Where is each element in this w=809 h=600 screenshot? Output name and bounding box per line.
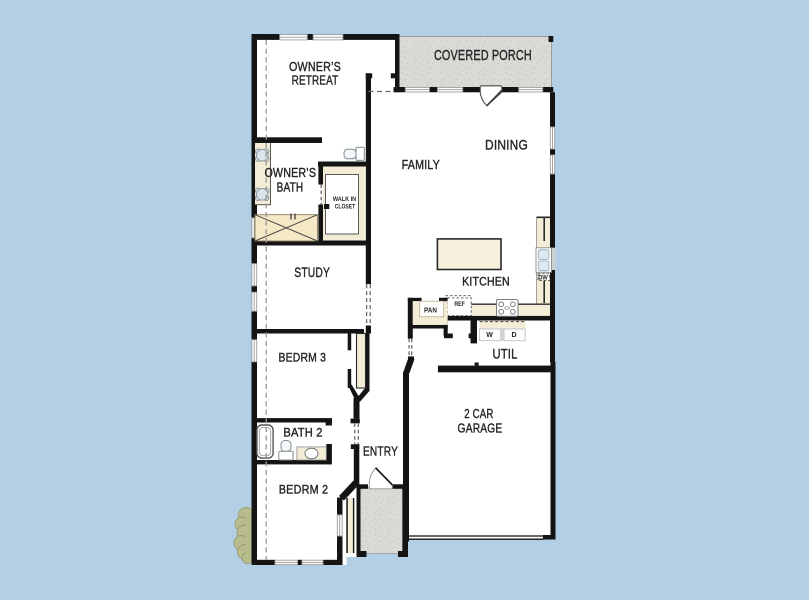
svg-text:W: W <box>486 332 493 339</box>
svg-text:PAN: PAN <box>424 306 437 315</box>
svg-text:2 CAR: 2 CAR <box>464 407 493 421</box>
svg-text:D: D <box>511 332 516 339</box>
svg-text:KITCHEN: KITCHEN <box>462 275 510 289</box>
svg-text:DINING: DINING <box>485 136 528 152</box>
svg-text:BEDRM 2: BEDRM 2 <box>279 483 329 497</box>
svg-text:REF: REF <box>454 301 465 308</box>
svg-text:ENTRY: ENTRY <box>363 444 398 458</box>
svg-text:CLOSET: CLOSET <box>335 204 356 211</box>
svg-text:OWNER’S: OWNER’S <box>264 165 316 180</box>
svg-text:FAMILY: FAMILY <box>402 157 440 172</box>
svg-text:WALK IN: WALK IN <box>333 196 356 203</box>
svg-text:BEDRM 3: BEDRM 3 <box>279 351 327 365</box>
svg-text:BATH 2: BATH 2 <box>283 425 322 439</box>
svg-text:GARAGE: GARAGE <box>458 422 503 436</box>
svg-text:RETREAT: RETREAT <box>292 73 339 88</box>
svg-text:DW: DW <box>538 275 548 282</box>
svg-text:UTIL: UTIL <box>493 346 518 362</box>
svg-text:COVERED PORCH: COVERED PORCH <box>434 47 532 64</box>
svg-text:BATH: BATH <box>277 180 304 195</box>
svg-text:STUDY: STUDY <box>294 264 330 280</box>
